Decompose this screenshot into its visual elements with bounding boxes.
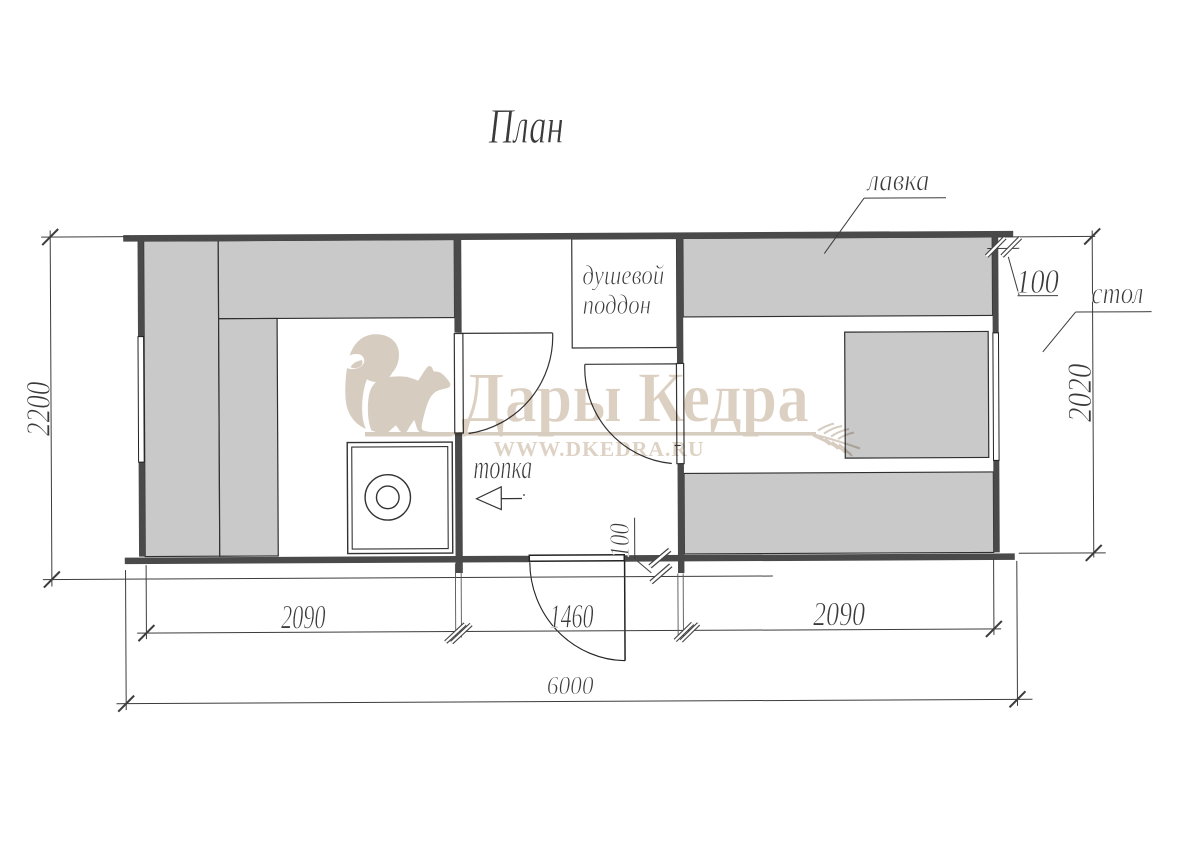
svg-text:стол: стол bbox=[1091, 275, 1143, 310]
svg-text:100: 100 bbox=[1016, 264, 1059, 301]
svg-text:душевой: душевой bbox=[582, 260, 664, 291]
svg-text:1460: 1460 bbox=[549, 598, 593, 635]
svg-text:Дары Кедра: Дары Кедра bbox=[461, 358, 809, 438]
svg-text:лавка: лавка bbox=[866, 162, 930, 197]
svg-text:2200: 2200 bbox=[20, 382, 57, 437]
svg-text:2090: 2090 bbox=[813, 596, 865, 633]
svg-text:WWW.DKEDRA.RU: WWW.DKEDRA.RU bbox=[494, 437, 704, 461]
svg-text:2020: 2020 bbox=[1062, 363, 1099, 422]
svg-text:2090: 2090 bbox=[281, 599, 326, 636]
svg-text:100: 100 bbox=[605, 523, 636, 557]
svg-text:6000: 6000 bbox=[547, 671, 594, 700]
svg-text:поддон: поддон bbox=[582, 290, 651, 321]
svg-text:План: План bbox=[488, 98, 564, 154]
